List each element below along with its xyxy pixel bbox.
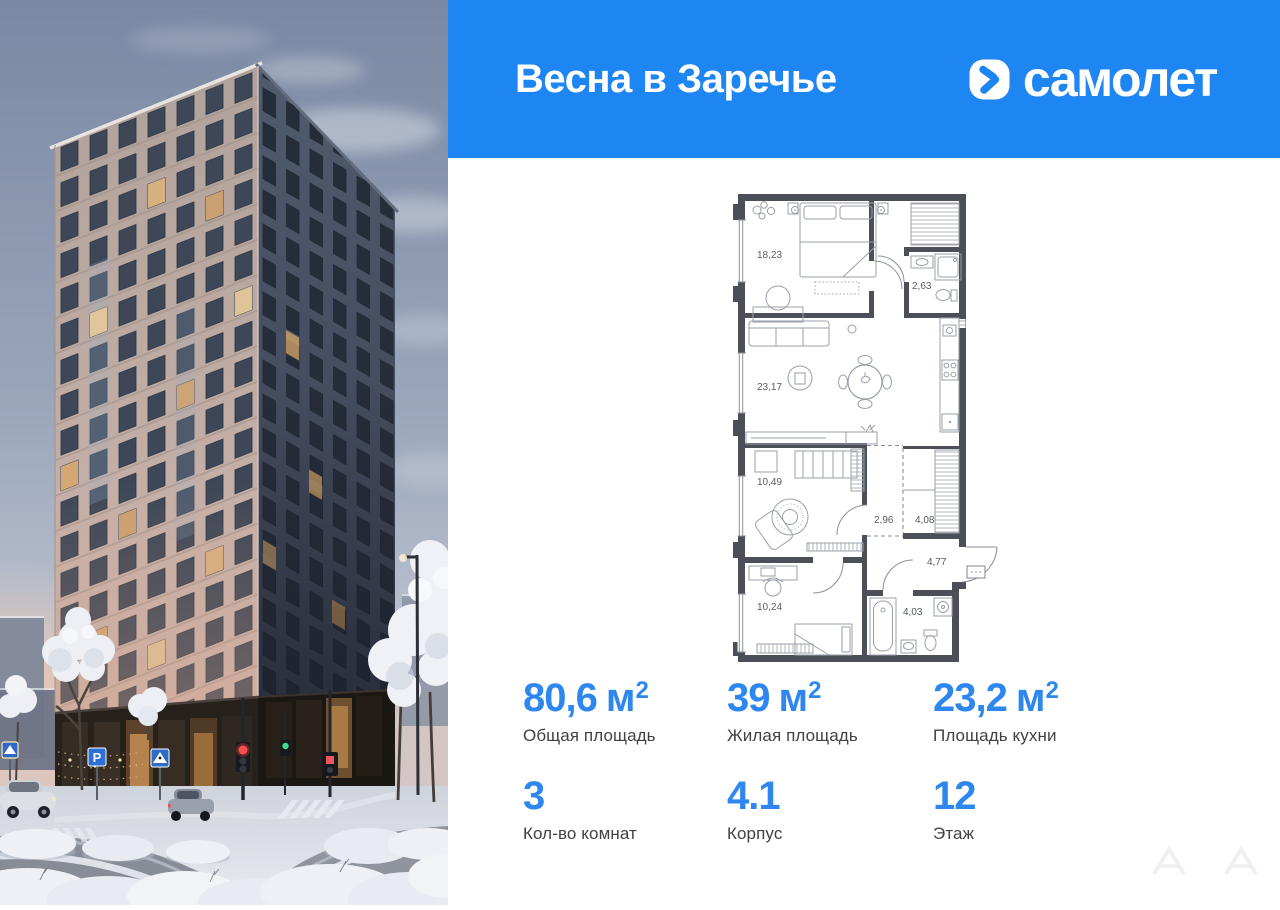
room-area-label: 23,17 xyxy=(757,382,782,393)
stat-total-area-value: 80,6м2 xyxy=(523,679,728,717)
stat-rooms-count: 3 Кол-во комнат xyxy=(523,777,728,844)
stat-building: 4.1 Корпус xyxy=(727,777,932,844)
room-area-label: 2,96 xyxy=(874,515,894,526)
stat-living-area-label: Жилая площадь xyxy=(727,726,932,746)
stat-building-label: Корпус xyxy=(727,824,932,844)
project-title: Весна в Заречье xyxy=(515,57,837,102)
room-area-label: 4,08 xyxy=(915,515,935,526)
plan-entrance-door xyxy=(962,547,997,582)
building-photo-svg: P xyxy=(0,0,448,905)
stat-floor-value: 12 xyxy=(933,777,1138,815)
plan-furniture xyxy=(746,202,961,655)
stat-kitchen-area-value: 23,2м2 xyxy=(933,679,1138,717)
building-photo: P xyxy=(0,0,448,905)
room-area-label: 4,03 xyxy=(903,607,923,618)
samolet-logo-icon xyxy=(969,59,1010,100)
watermark-icon xyxy=(1148,845,1194,877)
room-area-label: 4,77 xyxy=(927,557,947,568)
stat-total-area: 80,6м2 Общая площадь xyxy=(523,679,728,746)
floor-plan: 18,23 2,63 23,17 10,49 2,96 4,08 4,77 10… xyxy=(731,190,1003,664)
listing-card[interactable]: Весна в Заречье самолет xyxy=(448,0,1280,905)
stat-rooms-count-label: Кол-во комнат xyxy=(523,824,728,844)
stat-rooms-count-value: 3 xyxy=(523,777,728,815)
room-area-label: 18,23 xyxy=(757,250,782,261)
brand-name: самолет xyxy=(1023,54,1217,104)
room-area-label: 10,24 xyxy=(757,602,782,613)
plan-walls xyxy=(733,194,966,662)
watermark-icon xyxy=(1220,845,1266,877)
stat-kitchen-area-label: Площадь кухни xyxy=(933,726,1138,746)
brand-logo: самолет xyxy=(969,54,1217,104)
tower xyxy=(50,60,398,720)
stat-kitchen-area: 23,2м2 Площадь кухни xyxy=(933,679,1138,746)
room-area-label: 2,63 xyxy=(912,281,932,292)
room-area-label: 10,49 xyxy=(757,477,782,488)
parking-sign-label: P xyxy=(93,750,102,765)
stat-building-value: 4.1 xyxy=(727,777,932,815)
stat-floor: 12 Этаж xyxy=(933,777,1138,844)
card-header: Весна в Заречье самолет xyxy=(448,0,1280,158)
stat-living-area-value: 39м2 xyxy=(727,679,932,717)
stat-living-area: 39м2 Жилая площадь xyxy=(727,679,932,746)
stat-total-area-label: Общая площадь xyxy=(523,726,728,746)
stat-floor-label: Этаж xyxy=(933,824,1138,844)
